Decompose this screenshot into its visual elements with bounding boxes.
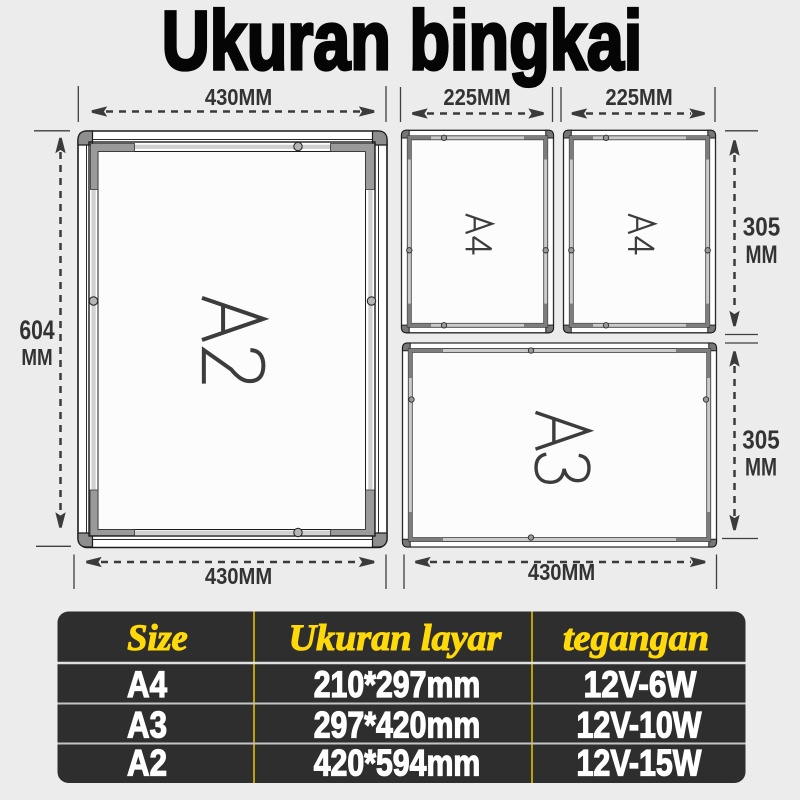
- svg-text:12V-6W: 12V-6W: [584, 665, 697, 706]
- svg-text:tegangan: tegangan: [563, 618, 709, 658]
- svg-text:225MM: 225MM: [605, 84, 672, 111]
- svg-text:12V-10W: 12V-10W: [577, 705, 703, 747]
- svg-text:A2: A2: [127, 743, 167, 784]
- svg-text:430MM: 430MM: [205, 84, 272, 111]
- svg-text:Ukuran bingkai: Ukuran bingkai: [162, 0, 642, 88]
- svg-text:420*594mm: 420*594mm: [314, 742, 481, 784]
- svg-text:225MM: 225MM: [443, 84, 510, 111]
- svg-text:MM: MM: [745, 241, 777, 269]
- svg-text:A3: A3: [127, 705, 167, 746]
- svg-text:430MM: 430MM: [528, 559, 595, 586]
- svg-text:MM: MM: [745, 453, 777, 481]
- svg-text:MM: MM: [21, 344, 52, 371]
- svg-text:297*420mm: 297*420mm: [314, 704, 481, 746]
- svg-text:A4: A4: [127, 664, 168, 705]
- svg-text:305: 305: [742, 426, 779, 455]
- svg-text:Ukuran layar: Ukuran layar: [289, 618, 502, 658]
- svg-text:430MM: 430MM: [205, 563, 272, 590]
- svg-text:305: 305: [743, 213, 780, 242]
- svg-text:12V-15W: 12V-15W: [577, 743, 703, 785]
- svg-text:210*297mm: 210*297mm: [314, 664, 481, 706]
- svg-text:604: 604: [19, 316, 55, 346]
- svg-text:Size: Size: [127, 617, 187, 658]
